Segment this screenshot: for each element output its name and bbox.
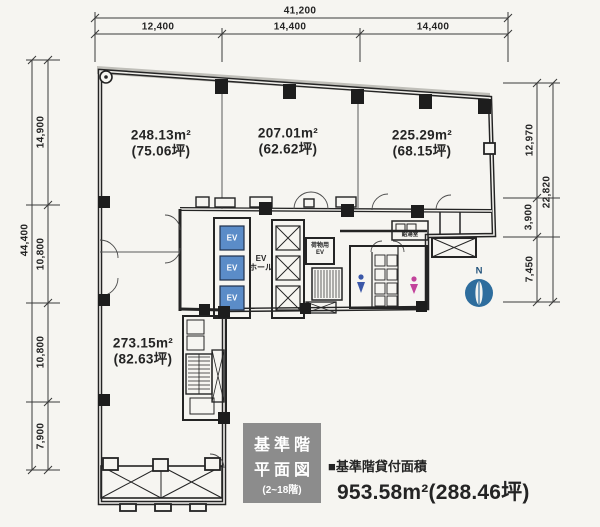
area-tsubo: (82.63坪) bbox=[113, 351, 173, 367]
area-label-northcenter: 207.01m² (62.62坪) bbox=[258, 125, 318, 156]
title-block: 基準階 平面図 (2~18階) bbox=[243, 423, 321, 503]
cargo-ev-line1: 荷物用 bbox=[311, 243, 329, 250]
area-tsubo: (75.06坪) bbox=[131, 143, 191, 159]
core-staircase bbox=[306, 268, 342, 313]
area-sqm: 273.15m² bbox=[113, 335, 173, 351]
elevator-hall-line1: EV bbox=[249, 254, 273, 263]
cargo-elevator-label: 荷物用 EV bbox=[311, 243, 329, 257]
elevator-hall-label: EV ホール bbox=[249, 254, 273, 272]
toilet-stalls bbox=[375, 255, 397, 306]
elevator-hall-line2: ホール bbox=[249, 263, 273, 272]
north-label: N bbox=[476, 267, 483, 278]
kitchenette-label: 給湯室 bbox=[402, 232, 419, 238]
mens-room-icon bbox=[357, 274, 365, 293]
elevator-car-label: EV bbox=[227, 293, 238, 302]
area-tsubo: (62.62坪) bbox=[258, 141, 318, 157]
area-tsubo: (68.15坪) bbox=[392, 143, 452, 159]
cargo-ev-line2: EV bbox=[311, 250, 329, 257]
elevator-car-label: EV bbox=[227, 233, 238, 242]
title-line-1: 基準階 bbox=[254, 431, 314, 455]
elevator-car-label: EV bbox=[227, 263, 238, 272]
floor-plan-page: 41,200 12,400 14,400 14,400 44,400 14,90… bbox=[0, 0, 600, 527]
dim-right-seg-2: 3,900 bbox=[523, 204, 535, 231]
title-line-3: (2~18階) bbox=[262, 481, 301, 496]
restrooms bbox=[350, 246, 427, 308]
dim-left-seg-2: 10,800 bbox=[35, 238, 47, 270]
dim-right-seg-1: 12,970 bbox=[524, 124, 536, 156]
dim-right-seg-3: 7,450 bbox=[524, 256, 536, 283]
area-label-northwest: 248.13m² (75.06坪) bbox=[131, 127, 191, 158]
service-shafts bbox=[272, 220, 304, 318]
lower-staircase bbox=[183, 316, 226, 420]
dim-left-seg-4: 7,900 bbox=[35, 423, 47, 450]
area-sqm: 207.01m² bbox=[258, 125, 318, 141]
shaft-boxes bbox=[196, 197, 356, 207]
dim-left-total: 44,400 bbox=[19, 224, 31, 256]
title-line-2: 平面図 bbox=[254, 456, 314, 480]
womens-room-icon bbox=[410, 276, 418, 294]
dim-right-outer: 22,820 bbox=[541, 176, 553, 208]
north-compass bbox=[465, 279, 493, 307]
area-sqm: 225.29m² bbox=[392, 127, 452, 143]
area-sqm: 248.13m² bbox=[131, 127, 191, 143]
dim-left-seg-1: 14,900 bbox=[35, 116, 47, 148]
dim-top-seg-3: 14,400 bbox=[417, 21, 449, 33]
dim-top-seg-1: 12,400 bbox=[142, 21, 174, 33]
leasable-area-value: 953.58m²(288.46坪) bbox=[337, 476, 530, 506]
dim-top-seg-2: 14,400 bbox=[274, 21, 306, 33]
dim-top-total: 41,200 bbox=[284, 5, 316, 17]
balcony-brace bbox=[432, 238, 476, 257]
column-grid-marker bbox=[100, 71, 112, 83]
area-label-south: 273.15m² (82.63坪) bbox=[113, 335, 173, 366]
dim-left-seg-3: 10,800 bbox=[35, 336, 47, 368]
leasable-area-label: ■基準階貸付面積 bbox=[328, 456, 427, 475]
area-label-northeast: 225.29m² (68.15坪) bbox=[392, 127, 452, 158]
